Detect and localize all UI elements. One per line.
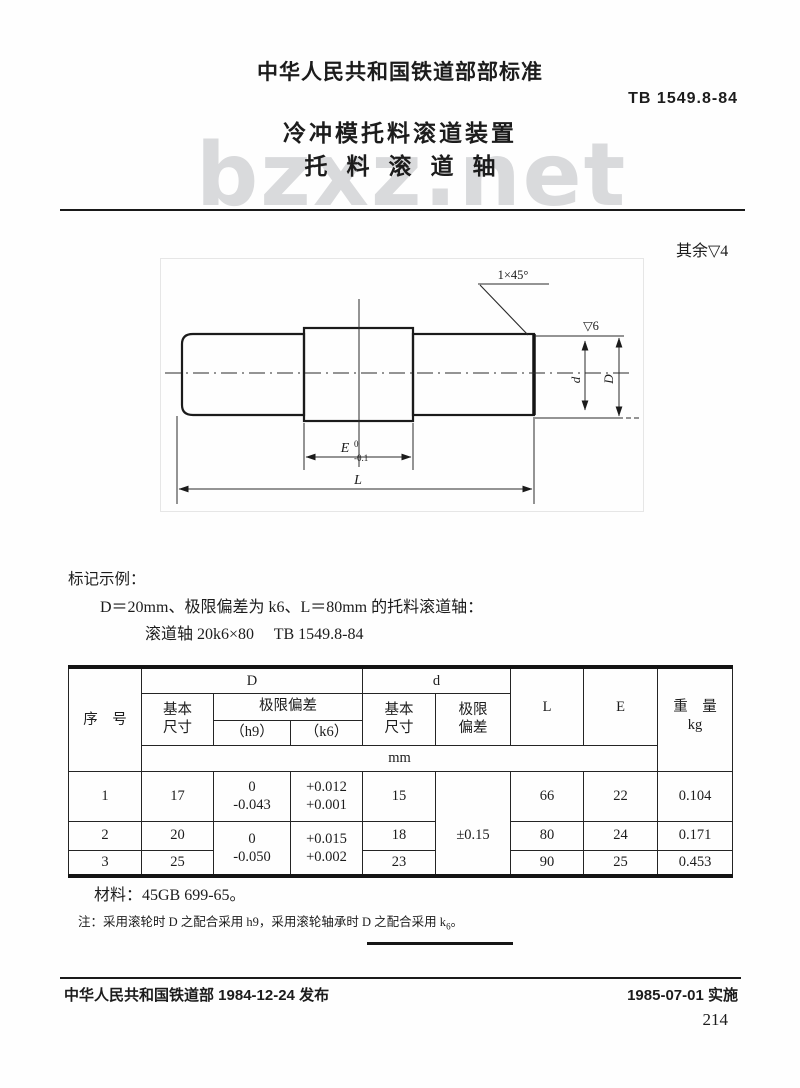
table-row-3: 3 25 23 90 25 0.453 xyxy=(69,850,733,876)
chamfer-dimension-label: 1×45° xyxy=(498,268,529,282)
header-weight-unit: kg xyxy=(658,716,732,734)
cell-L: 66 xyxy=(511,771,584,821)
header-weight-label: 重 量 xyxy=(658,698,732,716)
cell-weight: 0.453 xyxy=(658,850,733,876)
header-D-basic: 基本 尺寸 xyxy=(142,693,214,745)
cell-h9-merged: 0 -0.050 xyxy=(214,821,291,876)
section-end-divider xyxy=(367,942,513,945)
footer-divider-line xyxy=(60,977,741,979)
issue-statement: 中华人民共和国铁道部 1984-12-24 发布 xyxy=(64,984,329,1005)
standard-number: TB 1549.8-84 xyxy=(628,90,738,108)
document-title-line1: 冷冲模托料滚道装置 xyxy=(0,114,800,148)
cell-seq: 3 xyxy=(69,850,142,876)
shaft-drawing-svg: 1×45° ▽6 d D E 0 -0.1 L xyxy=(161,259,645,513)
header-k6: （k6） xyxy=(291,720,363,745)
table-row-1: 1 17 0 -0.043 +0.012 +0.001 15 ±0.15 66 xyxy=(69,771,733,821)
cell-D-basic: 25 xyxy=(142,850,214,876)
marking-example-description: D＝20mm、极限偏差为 k6、L＝80mm 的托料滚道轴： xyxy=(100,593,483,617)
header-D-deviation: 极限偏差 xyxy=(214,693,363,720)
cell-d-basic: 18 xyxy=(363,821,436,850)
cell-seq: 1 xyxy=(69,771,142,821)
d-dimension-label: d xyxy=(568,376,583,383)
e-tolerance-upper: 0 xyxy=(354,439,359,449)
unit-cell: mm xyxy=(142,745,658,771)
cell-L: 80 xyxy=(511,821,584,850)
header-divider-line xyxy=(60,209,745,211)
header-L: L xyxy=(511,667,584,745)
cell-k6: +0.012 +0.001 xyxy=(291,771,363,821)
cell-k6-merged: +0.015 +0.002 xyxy=(291,821,363,876)
header-weight: 重 量 kg xyxy=(658,667,733,771)
e-dimension-label: E xyxy=(340,441,350,456)
material-spec: 材料：45GB 699-65。 xyxy=(94,881,246,905)
document-title-line2: 托料滚道轴 xyxy=(0,147,800,181)
header-E: E xyxy=(584,667,658,745)
cell-weight: 0.171 xyxy=(658,821,733,850)
table-unit-row: mm xyxy=(69,745,733,771)
header-d-basic: 基本 尺寸 xyxy=(363,693,436,745)
header-d-deviation: 极限 偏差 xyxy=(436,693,511,745)
implementation-date: 1985-07-01 实施 xyxy=(627,984,738,1005)
surface-finish-6-label: ▽6 xyxy=(583,319,599,333)
cell-E: 25 xyxy=(584,850,658,876)
standard-document-page: bzxz.net 中华人民共和国铁道部部标准 TB 1549.8-84 冷冲模托… xyxy=(0,0,800,1088)
cell-d-basic: 15 xyxy=(363,771,436,821)
shaft-left-section xyxy=(182,334,304,415)
header-h9: （h9） xyxy=(214,720,291,745)
marking-example-designation: 滚道轴 20k6×80 TB 1549.8-84 xyxy=(145,620,364,644)
cell-weight: 0.104 xyxy=(658,771,733,821)
cell-h9: 0 -0.043 xyxy=(214,771,291,821)
dimension-table: 序 号 D d L E 重 量 kg 基本 尺寸 极限偏差 xyxy=(68,665,733,878)
D-dimension-label: D xyxy=(601,374,616,385)
marking-example-heading: 标记示例： xyxy=(68,567,146,589)
cell-D-basic: 17 xyxy=(142,771,214,821)
shaft-right-section xyxy=(413,334,534,415)
surface-finish-note: 其余▽4 xyxy=(676,237,728,261)
page-number: 214 xyxy=(703,1010,729,1030)
cell-E: 22 xyxy=(584,771,658,821)
cell-seq: 2 xyxy=(69,821,142,850)
table-row-2: 2 20 0 -0.050 +0.015 +0.002 18 80 24 xyxy=(69,821,733,850)
header-group-D: D xyxy=(142,667,363,693)
e-tolerance-lower: -0.1 xyxy=(354,453,368,463)
header-group-d: d xyxy=(363,667,511,693)
standard-organization-heading: 中华人民共和国铁道部部标准 xyxy=(0,56,800,86)
l-dimension-label: L xyxy=(353,473,362,488)
table-header-row-groups: 序 号 D d L E 重 量 kg xyxy=(69,667,733,693)
cell-D-basic: 20 xyxy=(142,821,214,850)
chamfer-leader-line xyxy=(480,285,528,335)
cell-d-basic: 23 xyxy=(363,850,436,876)
cell-d-deviation: ±0.15 xyxy=(436,771,511,876)
header-seq: 序 号 xyxy=(69,667,142,771)
cell-E: 24 xyxy=(584,821,658,850)
shaft-technical-drawing: 1×45° ▽6 d D E 0 -0.1 L xyxy=(160,258,644,512)
footnote: 注：采用滚轮时 D 之配合采用 h9，采用滚轮轴承时 D 之配合采用 k6。 xyxy=(78,911,463,932)
cell-L: 90 xyxy=(511,850,584,876)
